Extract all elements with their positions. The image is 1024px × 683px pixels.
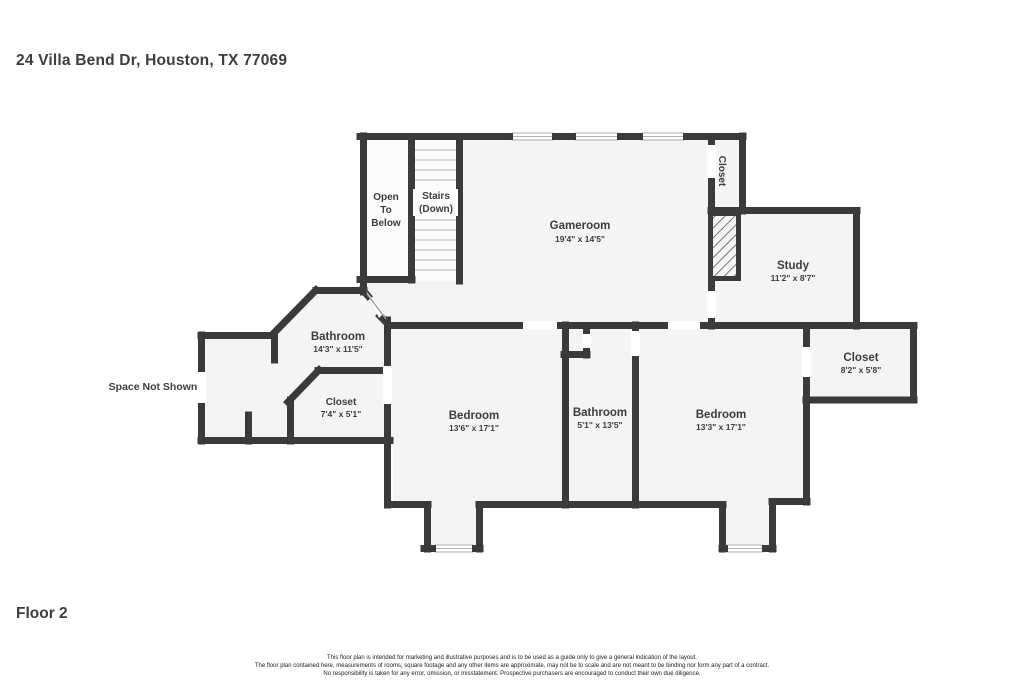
chimney-hatch xyxy=(711,214,739,279)
svg-text:5'1" x 13'5": 5'1" x 13'5" xyxy=(577,420,622,430)
svg-text:13'6" x 17'1": 13'6" x 17'1" xyxy=(449,423,499,433)
svg-text:Closet: Closet xyxy=(843,352,878,364)
window-glyph xyxy=(725,545,765,552)
svg-text:Open: Open xyxy=(373,192,399,203)
disclaimer-line-1: This floor plan is intended for marketin… xyxy=(0,654,1024,662)
disclaimer-line-3: No responsibility is taken for any error… xyxy=(0,670,1024,678)
disclaimer: This floor plan is intended for marketin… xyxy=(0,654,1024,678)
floorplan-page: 24 Villa Bend Dr, Houston, TX 77069 xyxy=(0,0,1024,683)
svg-text:Gameroom: Gameroom xyxy=(550,220,611,232)
window-glyph xyxy=(573,133,620,140)
window-glyph xyxy=(640,133,686,140)
svg-text:Bedroom: Bedroom xyxy=(696,409,746,421)
window-glyph xyxy=(510,133,555,140)
svg-text:14'3" x 11'5": 14'3" x 11'5" xyxy=(313,344,362,354)
room-label-bathroom-center: Bathroom 5'1" x 13'5" xyxy=(573,407,627,430)
disclaimer-line-2: The floor plan contained here, measureme… xyxy=(0,662,1024,670)
svg-text:(Down): (Down) xyxy=(419,204,453,215)
floor-plan: Gameroom 19'4" x 14'5" Study 11'2" x 8'7… xyxy=(0,0,1024,683)
svg-text:Bedroom: Bedroom xyxy=(449,410,499,422)
svg-text:Bathroom: Bathroom xyxy=(311,331,365,343)
room-label-closet-top: Closet xyxy=(716,156,727,187)
svg-text:8'2" x 5'8": 8'2" x 5'8" xyxy=(841,365,881,375)
svg-text:Study: Study xyxy=(777,260,810,272)
svg-text:7'4" x 5'1": 7'4" x 5'1" xyxy=(321,409,361,419)
svg-text:To: To xyxy=(380,205,391,216)
room-label-study: Study 11'2" x 8'7" xyxy=(771,260,816,283)
label-space-not-shown: Space Not Shown xyxy=(109,381,198,393)
room-label-bathroom-left: Bathroom 14'3" x 11'5" xyxy=(311,331,365,354)
room-label-closet-right: Closet 8'2" x 5'8" xyxy=(841,352,881,375)
svg-text:Below: Below xyxy=(371,218,401,229)
room-label-bedroom-left: Bedroom 13'6" x 17'1" xyxy=(449,410,499,433)
svg-text:Bathroom: Bathroom xyxy=(573,407,627,419)
svg-text:11'2" x 8'7": 11'2" x 8'7" xyxy=(771,273,816,283)
svg-text:13'3" x 17'1": 13'3" x 17'1" xyxy=(696,422,746,432)
svg-text:Closet: Closet xyxy=(716,156,727,187)
window-glyph xyxy=(433,545,475,552)
room-label-bedroom-right: Bedroom 13'3" x 17'1" xyxy=(696,409,746,432)
svg-text:Stairs: Stairs xyxy=(422,191,450,202)
floor-label: Floor 2 xyxy=(16,605,68,623)
svg-text:19'4" x 14'5": 19'4" x 14'5" xyxy=(555,234,605,244)
svg-text:Closet: Closet xyxy=(326,397,357,408)
